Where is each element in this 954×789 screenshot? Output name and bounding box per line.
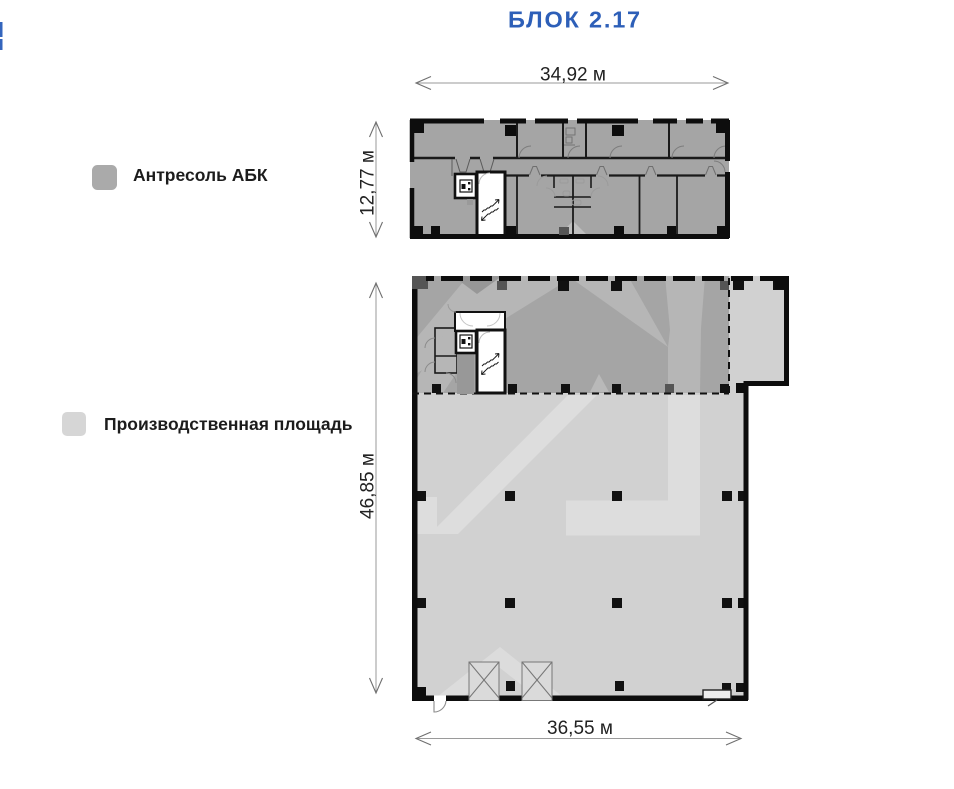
svg-text:12,77 м: 12,77 м — [358, 150, 379, 216]
svg-text:БЛОК 2.17: БЛОК 2.17 — [508, 7, 642, 33]
svg-text:36,55 м: 36,55 м — [547, 718, 613, 739]
svg-text:34,92 м: 34,92 м — [540, 65, 606, 86]
svg-text:46,85 м: 46,85 м — [358, 453, 379, 519]
svg-text:Производственная площадь: Производственная площадь — [104, 414, 353, 434]
svg-text:Антресоль АБК: Антресоль АБК — [133, 165, 268, 185]
